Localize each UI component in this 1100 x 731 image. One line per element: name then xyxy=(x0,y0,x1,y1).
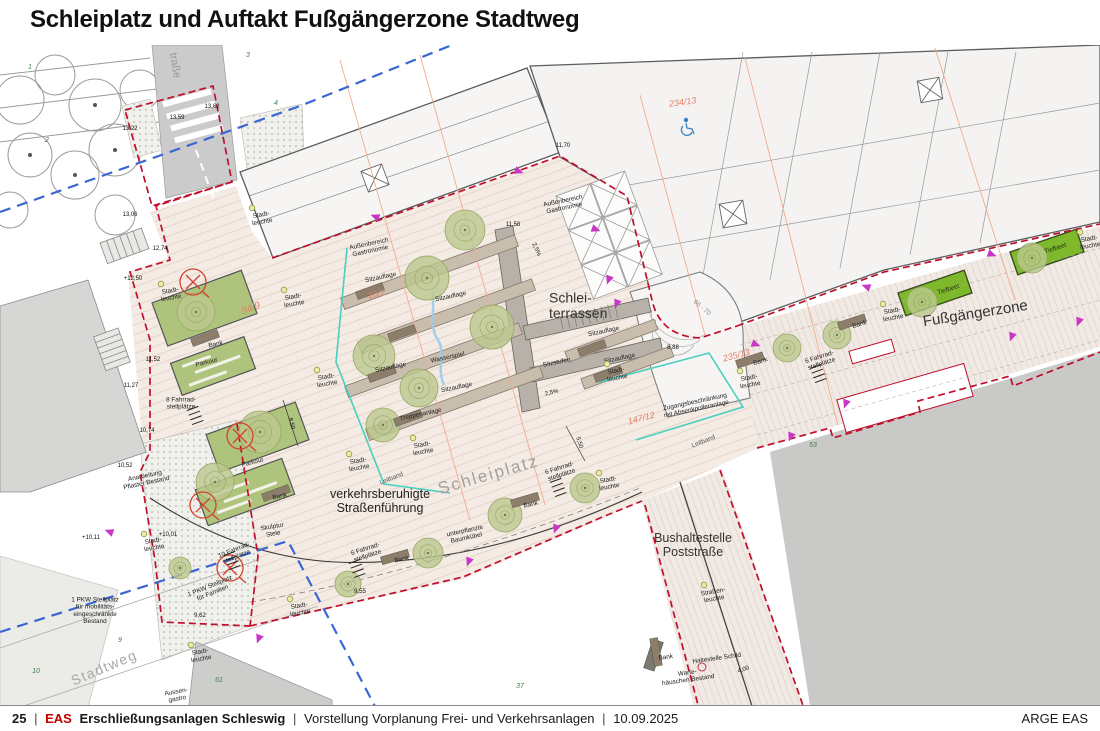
tree-trunk xyxy=(195,311,197,313)
street-lamp-icon xyxy=(737,368,743,374)
tree-trunk xyxy=(504,514,506,516)
site-plan-drawing: Schlei-terrassenFußgängerzoneSchleiplatz… xyxy=(0,45,1100,705)
plan-label: 11,70 xyxy=(556,143,571,149)
street-lamp-icon xyxy=(281,287,287,293)
tree-icon xyxy=(196,463,234,501)
plan-label: 1 xyxy=(28,64,32,71)
footer: 25 | EAS Erschließungsanlagen Schleswig … xyxy=(0,705,1100,731)
street-lamp-icon xyxy=(346,451,352,457)
tree-icon xyxy=(400,369,438,407)
plan-label: verkehrsberuhigteStraßenführung xyxy=(330,487,430,515)
street-lamp-icon xyxy=(410,435,416,441)
street-lamp-icon xyxy=(1077,229,1083,235)
footer-subtitle: Vorstellung Vorplanung Frei- und Verkehr… xyxy=(304,711,595,726)
tree-trunk xyxy=(382,424,384,426)
tree-icon xyxy=(570,473,600,503)
plan-label: 8 Fahrrad-stellplätze xyxy=(166,396,196,410)
tree-trunk xyxy=(373,355,375,357)
street-crossing xyxy=(152,45,237,200)
tree-icon xyxy=(470,305,514,349)
footer-separator: | xyxy=(293,711,296,726)
plan-label: 13,06 xyxy=(122,212,138,218)
presentation-slide: Schleiplatz und Auftakt Fußgängerzone St… xyxy=(0,0,1100,731)
plan-label: 53 xyxy=(809,442,817,449)
tree-icon xyxy=(366,408,400,442)
tree-trunk xyxy=(1031,257,1033,259)
tree-trunk xyxy=(464,229,466,231)
tree-trunk xyxy=(427,552,429,554)
plan-label: BushaltestellePoststraße xyxy=(654,531,732,559)
footer-left: 25 | EAS Erschließungsanlagen Schleswig … xyxy=(12,711,682,726)
plan-label: 2 xyxy=(44,137,49,144)
plan-label: 10,52 xyxy=(117,463,133,469)
plan-label: 11,52 xyxy=(146,357,161,363)
plan-label: 12,74 xyxy=(152,246,168,252)
plan-label: 10 xyxy=(32,668,40,675)
plan-label: 10,74 xyxy=(139,428,155,434)
tree-trunk xyxy=(584,487,586,489)
tree-trunk xyxy=(786,347,788,349)
tree-trunk xyxy=(259,431,261,433)
tree-trunk xyxy=(347,583,349,585)
tree-icon xyxy=(177,293,215,331)
tree-icon xyxy=(413,538,443,568)
street-lamp-icon xyxy=(314,367,320,373)
tree-trunk xyxy=(921,301,923,303)
plan-label: 3 xyxy=(246,52,250,59)
plan-label: 61 xyxy=(215,677,223,684)
plan-label: +10,01 xyxy=(159,532,178,538)
street-lamp-icon xyxy=(141,531,147,537)
plan-label: 9,62 xyxy=(194,613,206,619)
street-lamp-icon xyxy=(287,596,293,602)
plan-label: 13,62 xyxy=(204,104,220,110)
plan-label: 9,55 xyxy=(354,589,366,595)
site-plan: Schlei-terrassenFußgängerzoneSchleiplatz… xyxy=(0,45,1100,705)
tree-trunk xyxy=(836,334,838,336)
street-lamp-icon xyxy=(701,582,707,588)
plan-label: 4 xyxy=(274,100,278,107)
footer-right: ARGE EAS xyxy=(1022,711,1088,726)
plan-label: 9 xyxy=(118,637,122,644)
footer-date: 10.09.2025 xyxy=(613,711,678,726)
footer-separator: | xyxy=(602,711,605,726)
plan-label: 11,58 xyxy=(506,222,521,228)
street-lamp-icon xyxy=(158,281,164,287)
plan-label: 37 xyxy=(516,683,525,690)
tree-icon xyxy=(405,256,449,300)
street-lamp-icon xyxy=(604,361,610,367)
street-lamp-icon xyxy=(880,301,886,307)
tree-trunk xyxy=(214,481,216,483)
tree-trunk xyxy=(491,326,493,328)
plan-label: 8,88 xyxy=(667,345,679,351)
page-title: Schleiplatz und Auftakt Fußgängerzone St… xyxy=(30,6,579,34)
street-lamp-icon xyxy=(188,642,194,648)
tree-icon xyxy=(169,557,191,579)
plan-label: +12,50 xyxy=(124,276,143,282)
plan-label: 13,22 xyxy=(122,126,138,132)
footer-brand: EAS xyxy=(45,711,72,726)
tree-icon xyxy=(773,334,801,362)
tree-trunk xyxy=(179,567,181,569)
footer-separator: | xyxy=(34,711,37,726)
plan-label: 11,27 xyxy=(124,383,139,389)
tree-trunk xyxy=(426,277,428,279)
tree-icon xyxy=(239,411,281,453)
street-lamp-icon xyxy=(249,205,255,211)
page-number: 25 xyxy=(12,711,26,726)
tree-icon xyxy=(445,210,485,250)
footer-project: Erschließungsanlagen Schleswig xyxy=(79,711,285,726)
street-lamp-icon xyxy=(596,470,602,476)
tree-trunk xyxy=(418,387,420,389)
tree-icon xyxy=(1017,243,1047,273)
plan-label: 13,59 xyxy=(169,115,185,121)
plan-label: +10,11 xyxy=(82,535,101,541)
